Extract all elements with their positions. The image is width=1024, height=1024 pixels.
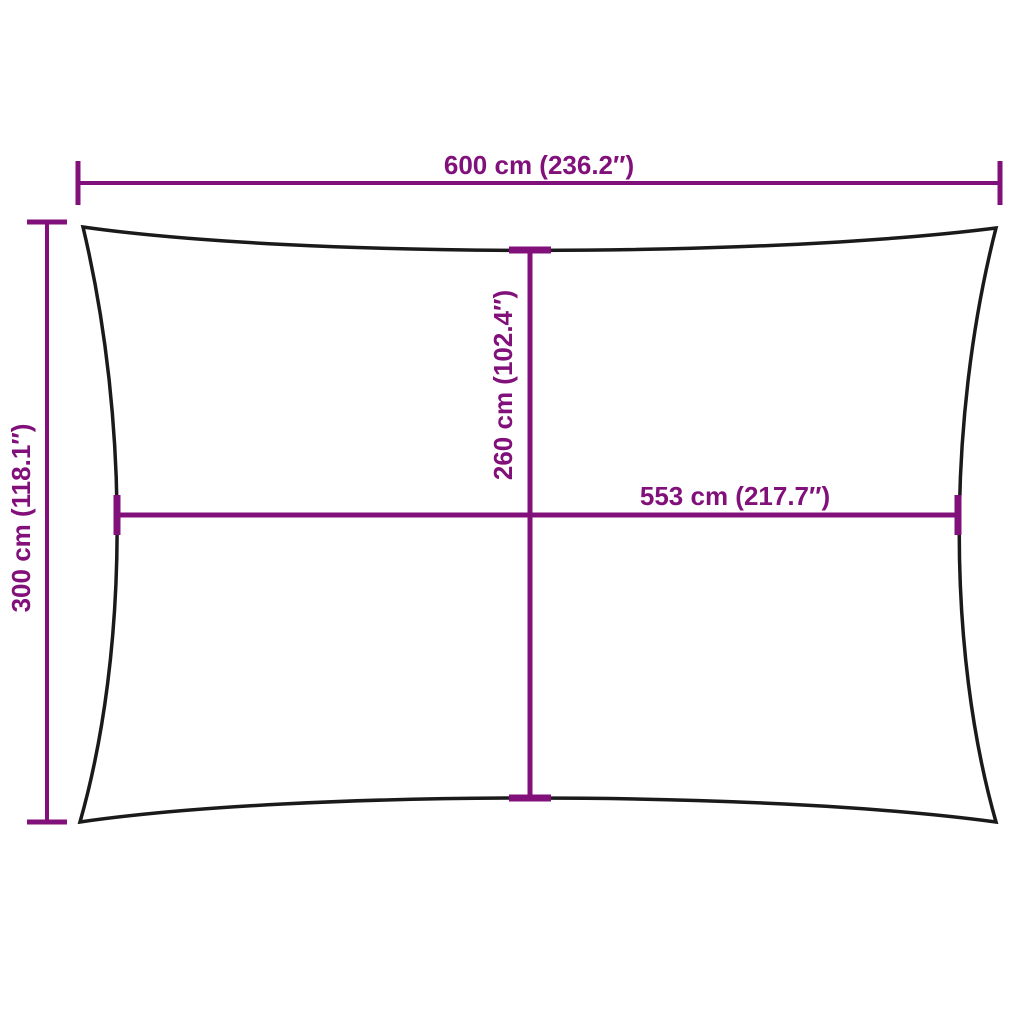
top-width-label: 600 cm (236.2″): [444, 150, 634, 180]
sail-outline-shape: [80, 227, 996, 822]
dimension-left-height: 300 cm (118.1″): [6, 222, 67, 822]
left-height-label: 300 cm (118.1″): [6, 424, 36, 613]
middle-height-label: 260 cm (102.4″): [488, 290, 518, 480]
dimension-top-width: 600 cm (236.2″): [78, 150, 1000, 205]
middle-width-label: 553 cm (217.7″): [640, 481, 830, 511]
dimension-diagram-svg: 600 cm (236.2″) 300 cm (118.1″) 260 cm (…: [0, 0, 1024, 1024]
product-dimension-diagram: 600 cm (236.2″) 300 cm (118.1″) 260 cm (…: [0, 0, 1024, 1024]
